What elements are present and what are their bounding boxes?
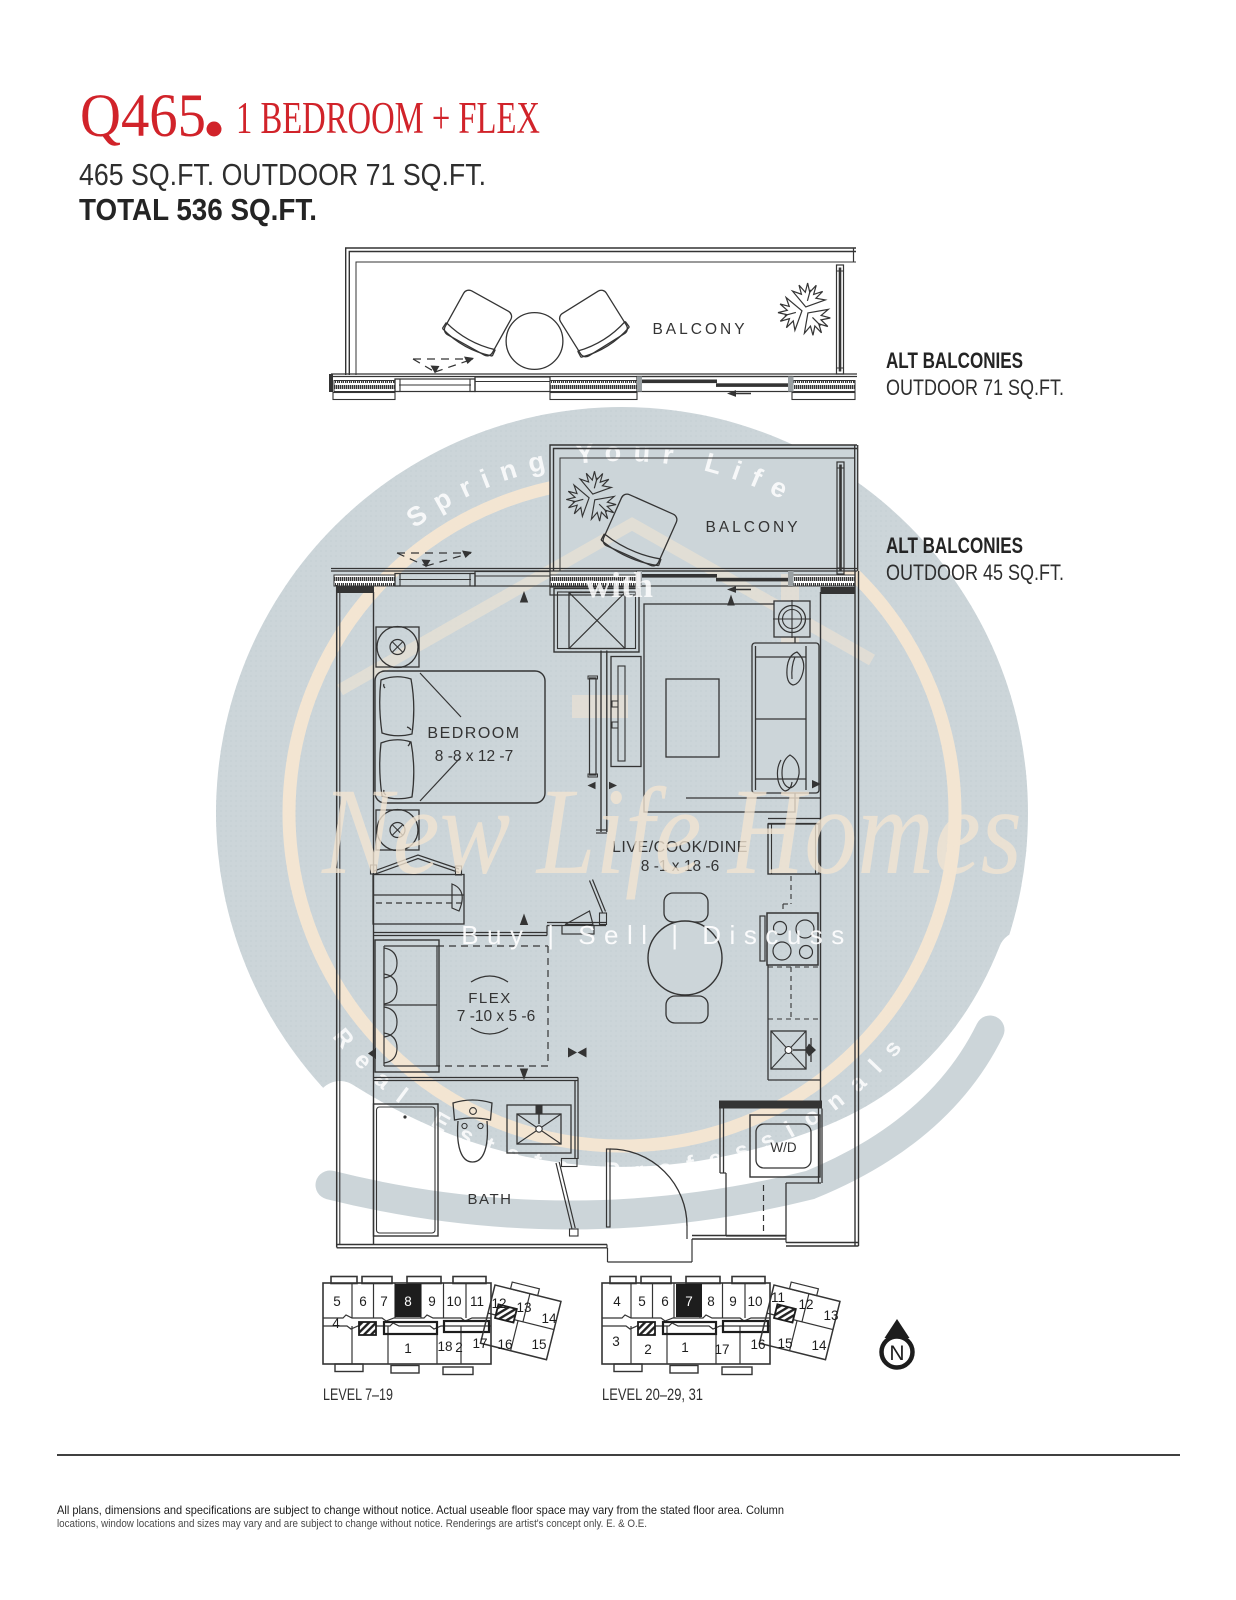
svg-text:LEVEL 20–29, 31: LEVEL 20–29, 31 [602, 1386, 703, 1404]
svg-text:12: 12 [491, 1296, 506, 1311]
svg-text:17: 17 [714, 1342, 729, 1357]
svg-text:465 SQ.FT. OUTDOOR 71 SQ.FT.: 465 SQ.FT. OUTDOOR 71 SQ.FT. [79, 157, 486, 192]
svg-text:LEVEL 7–19: LEVEL 7–19 [323, 1386, 393, 1404]
svg-text:OUTDOOR 71 SQ.FT.: OUTDOOR 71 SQ.FT. [886, 375, 1064, 400]
svg-text:15: 15 [777, 1336, 792, 1351]
svg-text:8: 8 [404, 1294, 412, 1309]
svg-text:All plans, dimensions and spec: All plans, dimensions and specifications… [57, 1503, 784, 1517]
svg-text:15: 15 [531, 1337, 546, 1352]
svg-text:locations, window locations an: locations, window locations and sizes ma… [57, 1518, 647, 1530]
svg-text:BATH: BATH [468, 1191, 513, 1208]
svg-text:5: 5 [638, 1294, 646, 1309]
svg-text:14: 14 [811, 1338, 827, 1353]
svg-text:8: 8 [707, 1294, 715, 1309]
svg-text:TOTAL 536 SQ.FT.: TOTAL 536 SQ.FT. [79, 192, 317, 227]
svg-text:18: 18 [437, 1339, 452, 1354]
svg-text:2: 2 [644, 1342, 652, 1357]
svg-text:BALCONY: BALCONY [705, 519, 800, 536]
svg-text:10: 10 [747, 1294, 762, 1309]
svg-text:11: 11 [771, 1290, 785, 1305]
svg-text:FLEX: FLEX [468, 990, 512, 1007]
svg-text:4: 4 [332, 1316, 340, 1331]
svg-text:9: 9 [729, 1294, 737, 1309]
svg-text:1 BEDROOM + FLEX: 1 BEDROOM + FLEX [236, 93, 540, 143]
svg-text:10: 10 [446, 1294, 461, 1309]
svg-text:W/D: W/D [770, 1140, 796, 1155]
svg-text:with: with [585, 565, 653, 605]
svg-text:17: 17 [472, 1336, 487, 1351]
svg-text:16: 16 [750, 1337, 765, 1352]
svg-text:16: 16 [497, 1337, 512, 1352]
svg-text:2: 2 [455, 1340, 463, 1355]
svg-text:1: 1 [681, 1340, 689, 1355]
svg-text:1: 1 [404, 1341, 412, 1356]
svg-text:N: N [889, 1342, 904, 1365]
svg-text:OUTDOOR 45 SQ.FT.: OUTDOOR 45 SQ.FT. [886, 560, 1064, 585]
svg-text:5: 5 [333, 1294, 341, 1309]
svg-text:9: 9 [428, 1294, 436, 1309]
svg-text:4: 4 [613, 1294, 621, 1309]
svg-text:13: 13 [516, 1300, 531, 1315]
svg-text:Buy | Sell | Discuss: Buy | Sell | Discuss [461, 920, 853, 950]
svg-text:ALT BALCONIES: ALT BALCONIES [886, 533, 1023, 558]
svg-text:12: 12 [798, 1297, 813, 1312]
svg-text:14: 14 [541, 1311, 557, 1326]
svg-text:13: 13 [823, 1308, 838, 1323]
svg-text:7 -10 x 5 -6: 7 -10 x 5 -6 [457, 1008, 535, 1025]
svg-text:Q465: Q465 [80, 83, 206, 150]
svg-text:BEDROOM: BEDROOM [427, 725, 520, 742]
svg-text:ALT BALCONIES: ALT BALCONIES [886, 348, 1023, 373]
svg-text:7: 7 [380, 1294, 388, 1309]
svg-text:3: 3 [612, 1334, 620, 1349]
svg-text:7: 7 [685, 1294, 693, 1309]
svg-text:6: 6 [359, 1294, 367, 1309]
svg-text:BALCONY: BALCONY [652, 321, 747, 338]
svg-text:New Life Homes: New Life Homes [321, 763, 1022, 900]
svg-text:6: 6 [661, 1294, 669, 1309]
svg-text:11: 11 [470, 1294, 484, 1309]
